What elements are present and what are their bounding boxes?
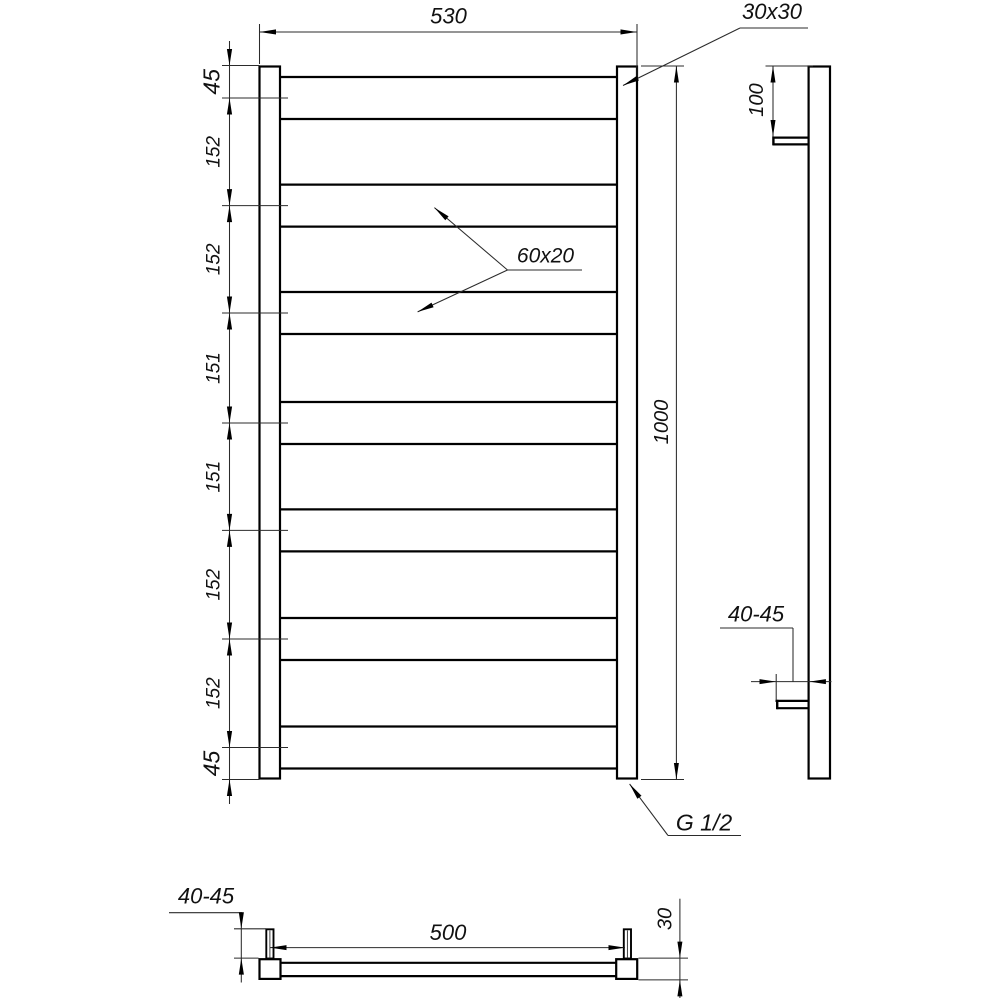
- svg-text:1000: 1000: [651, 400, 673, 445]
- svg-text:151: 151: [204, 461, 225, 493]
- svg-text:45: 45: [199, 69, 225, 95]
- svg-text:100: 100: [746, 83, 768, 116]
- svg-text:500: 500: [430, 920, 467, 945]
- svg-text:30x30: 30x30: [742, 0, 803, 24]
- svg-text:152: 152: [204, 243, 225, 275]
- svg-text:530: 530: [430, 4, 467, 29]
- svg-text:152: 152: [204, 568, 225, 600]
- svg-text:30: 30: [655, 908, 677, 930]
- svg-text:40-45: 40-45: [728, 602, 785, 627]
- svg-text:G 1/2: G 1/2: [676, 810, 732, 836]
- svg-text:40-45: 40-45: [178, 884, 235, 909]
- svg-text:152: 152: [204, 677, 225, 709]
- svg-text:60x20: 60x20: [517, 245, 575, 268]
- svg-text:151: 151: [204, 352, 225, 384]
- svg-text:45: 45: [199, 751, 225, 777]
- svg-text:152: 152: [204, 136, 225, 168]
